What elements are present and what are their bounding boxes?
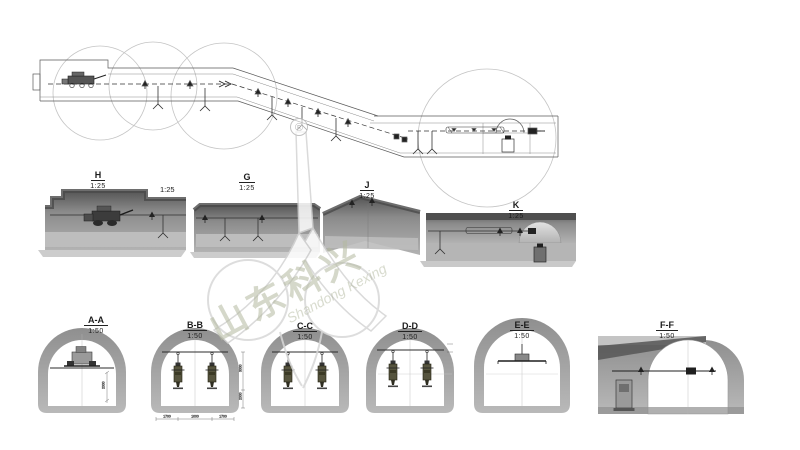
section-label-A-A: A-A 1:50 <box>78 311 114 335</box>
render-H <box>38 191 186 257</box>
view-label-K-name: K <box>509 201 524 211</box>
callout-circle-4 <box>418 69 556 207</box>
view-label-K: K 1:25 <box>500 196 532 220</box>
section-F-F <box>598 336 744 414</box>
dim-aa-height: 2000 <box>102 381 106 389</box>
section-label-D-D: D-D 1:50 <box>392 317 428 341</box>
dim-bb-spacing-left: 1700 <box>163 415 171 419</box>
section-B-B: 3000 2000 1700 1000 1700 <box>151 328 245 421</box>
dim-bb-spacing-mid: 1000 <box>191 415 199 419</box>
plan-cabinet <box>502 139 514 152</box>
view-label-H-name: H <box>91 171 106 181</box>
section-F-F-cabinet <box>614 380 635 411</box>
view-label-J: J 1:25 <box>351 176 383 200</box>
section-label-C-C-scale: 1:50 <box>287 334 323 341</box>
cad-drawing-sheet: 2000 3000 2000 1700 1000 1700 <box>0 0 800 450</box>
view-label-G-name: G <box>239 173 254 183</box>
section-label-B-B-name: B-B <box>183 321 207 331</box>
section-label-D-D-name: D-D <box>398 322 422 332</box>
dim-bb-drop: 3000 <box>239 364 243 372</box>
section-label-E-E-scale: 1:50 <box>504 333 540 340</box>
section-label-A-A-name: A-A <box>84 316 108 326</box>
section-label-A-A-scale: 1:50 <box>78 328 114 335</box>
section-A-A: 2000 <box>38 328 126 413</box>
section-label-E-E: E-E 1:50 <box>504 316 540 340</box>
section-label-F-F: F-F 1:50 <box>649 316 685 340</box>
render-K <box>420 213 576 267</box>
view-label-J-scale: 1:25 <box>351 193 383 200</box>
view-label-K-scale: 1:25 <box>500 213 532 220</box>
render-J <box>323 197 420 255</box>
view-label-G-scale: 1:25 <box>231 185 263 192</box>
plan-roadheader-vehicle <box>62 72 106 88</box>
section-label-C-C-name: C-C <box>293 322 317 332</box>
section-label-B-B: B-B 1:50 <box>177 316 213 340</box>
dim-bb-spacing-right: 1700 <box>219 415 227 419</box>
section-label-C-C: C-C 1:50 <box>287 317 323 341</box>
view-label-H: H 1:25 <box>82 166 114 190</box>
drawing-graphics: 2000 3000 2000 1700 1000 1700 <box>0 0 800 450</box>
section-label-E-E-name: E-E <box>510 321 533 331</box>
registered-mark: ® <box>295 122 303 134</box>
dim-bb-clearance: 2000 <box>239 392 243 400</box>
section-label-B-B-scale: 1:50 <box>177 333 213 340</box>
section-label-F-F-scale: 1:50 <box>649 333 685 340</box>
plan-symbols <box>142 81 545 155</box>
view-label-H-scale: 1:25 <box>82 183 114 190</box>
view-label-J-name: J <box>360 181 373 191</box>
view-label-G: G 1:25 <box>231 168 263 192</box>
view-label-H-secondary-scale: 1:25 <box>160 185 175 194</box>
callout-circle-3 <box>171 43 277 149</box>
section-label-F-F-name: F-F <box>656 321 678 331</box>
section-label-D-D-scale: 1:50 <box>392 334 428 341</box>
callout-circle-2 <box>109 42 197 130</box>
